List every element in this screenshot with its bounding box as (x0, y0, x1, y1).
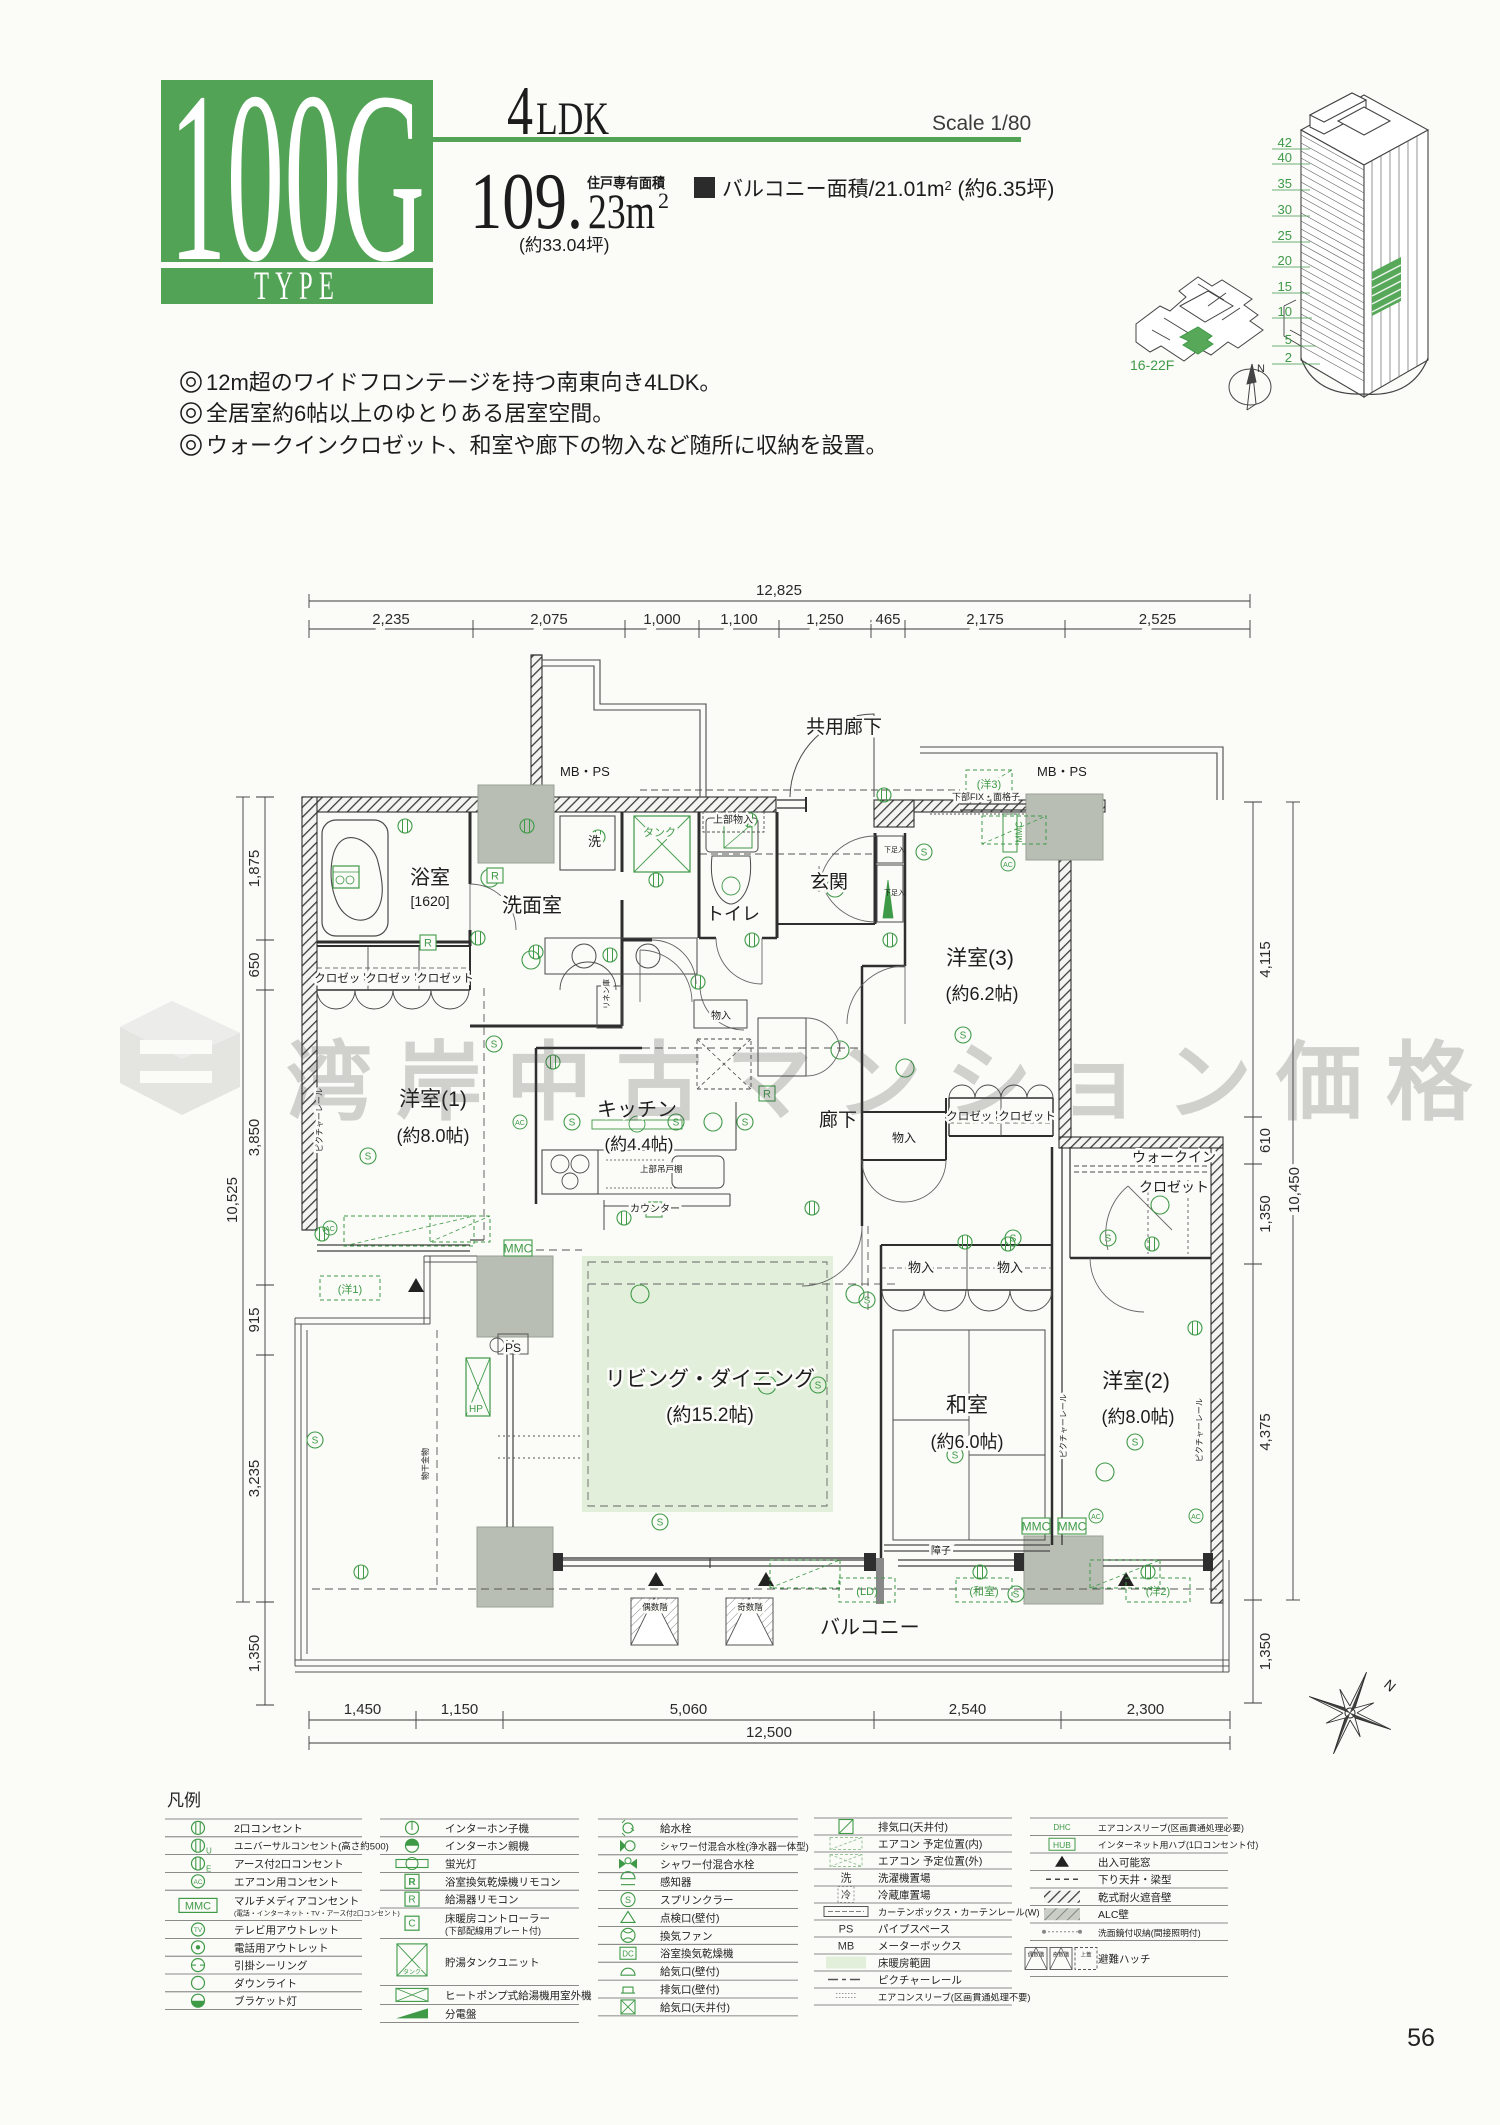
svg-text:16-22F: 16-22F (1130, 357, 1174, 373)
svg-text:障子: 障子 (931, 1544, 951, 1557)
svg-text:AC: AC (325, 1226, 335, 1233)
svg-text:5: 5 (1285, 332, 1292, 347)
svg-text:S: S (952, 1451, 959, 1462)
svg-text:テレビ用アウトレット: テレビ用アウトレット (234, 1925, 339, 1937)
svg-text:DC: DC (622, 1949, 634, 1958)
svg-text:住戸専有面積: 住戸専有面積 (587, 175, 666, 191)
svg-text:C: C (408, 1919, 415, 1930)
svg-text:PS: PS (839, 1924, 854, 1936)
svg-text:ダウンライト: ダウンライト (234, 1977, 297, 1990)
svg-text:洋室(3): 洋室(3) (946, 947, 1014, 970)
svg-text:床暖房コントローラー: 床暖房コントローラー (445, 1912, 550, 1925)
svg-text:TYPE: TYPE (254, 263, 340, 308)
svg-text:排気口(壁付): 排気口(壁付) (660, 1983, 720, 1996)
svg-text:冷: 冷 (841, 1889, 851, 1902)
svg-text:R: R (491, 871, 499, 883)
svg-text:2,540: 2,540 (949, 1701, 987, 1718)
svg-text:給水栓: 給水栓 (660, 1822, 692, 1835)
svg-text:1,250: 1,250 (806, 611, 844, 628)
svg-text:AC: AC (1091, 1514, 1101, 1521)
svg-text:3,850: 3,850 (246, 1119, 263, 1157)
svg-text:(洋2): (洋2) (1146, 1584, 1170, 1598)
svg-text:MMC: MMC (1014, 821, 1024, 843)
svg-text:AC: AC (193, 1879, 202, 1886)
svg-text:25: 25 (1278, 228, 1292, 243)
svg-text:2: 2 (1285, 350, 1292, 365)
svg-text:15: 15 (1278, 279, 1292, 294)
svg-text:650: 650 (246, 952, 263, 977)
svg-text:35: 35 (1278, 176, 1292, 191)
svg-text:洗面鏡付収納(間接照明付): 洗面鏡付収納(間接照明付) (1098, 1927, 1201, 1938)
svg-text:R: R (424, 938, 432, 950)
svg-text:2,075: 2,075 (530, 611, 568, 628)
svg-text:給気口(壁付): 給気口(壁付) (660, 1965, 720, 1978)
svg-text:20: 20 (1278, 253, 1292, 268)
svg-text:ウォークイン: ウォークイン (1132, 1149, 1216, 1165)
svg-text:クロゼット: クロゼット (365, 972, 423, 985)
svg-text:N: N (1257, 363, 1265, 375)
svg-text:12m超のワイドフロンテージを持つ南東向き4LDK。: 12m超のワイドフロンテージを持つ南東向き4LDK。 (206, 370, 721, 395)
svg-text:共用廊下: 共用廊下 (806, 716, 882, 738)
svg-text:排気口(天井付): 排気口(天井付) (878, 1821, 948, 1834)
svg-text:冷蔵庫置場: 冷蔵庫置場 (878, 1889, 931, 1902)
svg-text:1,450: 1,450 (344, 1701, 382, 1718)
svg-text:ユニバーサルコンセント(高さ約500): ユニバーサルコンセント(高さ約500) (234, 1841, 389, 1853)
svg-text:ウォークインクロゼット、和室や廊下の物入など随所に収納を設置: ウォークインクロゼット、和室や廊下の物入など随所に収納を設置。 (206, 433, 888, 458)
svg-text:56: 56 (1407, 2024, 1435, 2052)
svg-text:ブラケット灯: ブラケット灯 (234, 1995, 297, 2008)
svg-text:(約6.2帖): (約6.2帖) (945, 984, 1018, 1004)
svg-text:S: S (1132, 1438, 1139, 1449)
svg-text:(約8.0帖): (約8.0帖) (1101, 1407, 1174, 1427)
svg-text:4,375: 4,375 (1257, 1413, 1274, 1451)
svg-text:MMC: MMC (185, 1900, 211, 1912)
svg-text:30: 30 (1278, 202, 1292, 217)
svg-text:MB・PS: MB・PS (1037, 764, 1087, 779)
svg-text:4: 4 (507, 73, 533, 150)
svg-text:R: R (408, 1877, 416, 1888)
svg-text:点検口(壁付): 点検口(壁付) (660, 1912, 720, 1925)
svg-text:ヒートポンプ式給湯機用室外機: ヒートポンプ式給湯機用室外機 (445, 1989, 592, 2002)
svg-text:インターホン親機: インターホン親機 (445, 1840, 529, 1853)
svg-text:1,000: 1,000 (643, 611, 681, 628)
svg-text:下部FIX・面格子: 下部FIX・面格子 (952, 791, 1020, 802)
svg-text:(約15.2帖): (約15.2帖) (666, 1404, 754, 1426)
svg-text:LDK: LDK (536, 93, 609, 145)
svg-text:Scale 1/80: Scale 1/80 (932, 112, 1031, 135)
svg-text:3,235: 3,235 (246, 1460, 263, 1498)
svg-text:エアコンスリーブ(区画貫通処理不要): エアコンスリーブ(区画貫通処理不要) (878, 1992, 1030, 2003)
svg-text:床暖房範囲: 床暖房範囲 (878, 1957, 931, 1970)
svg-text:5,060: 5,060 (670, 1701, 708, 1718)
svg-text:クロゼット: クロゼット (1139, 1179, 1209, 1195)
svg-text:1,350: 1,350 (246, 1635, 263, 1673)
svg-text:引掛シーリング: 引掛シーリング (234, 1959, 308, 1972)
svg-text:洗面室: 洗面室 (502, 894, 562, 917)
svg-text:カーテンボックス・カーテンレール(W): カーテンボックス・カーテンレール(W) (878, 1908, 1040, 1918)
svg-text:2: 2 (658, 188, 669, 213)
svg-text:ピクチャーレール: ピクチャーレール (878, 1975, 962, 1987)
svg-text:S: S (625, 1895, 631, 1905)
svg-text:DHC: DHC (1053, 1823, 1071, 1832)
svg-text:分電盤: 分電盤 (445, 2007, 477, 2020)
svg-text:貯湯タンクユニット: 貯湯タンクユニット (445, 1957, 540, 1969)
svg-text:HP: HP (469, 1404, 483, 1415)
svg-text:洗: 洗 (588, 834, 601, 849)
svg-text:2,525: 2,525 (1139, 611, 1177, 628)
svg-text:インターネット用ハブ(1口コンセント付): インターネット用ハブ(1口コンセント付) (1098, 1839, 1258, 1850)
svg-text:(和室): (和室) (969, 1584, 998, 1598)
svg-text:2,300: 2,300 (1127, 1701, 1165, 1718)
svg-text:R: R (408, 1895, 415, 1906)
svg-text:12,500: 12,500 (746, 1724, 792, 1741)
svg-text:出入可能窓: 出入可能窓 (1098, 1856, 1151, 1869)
svg-text:S: S (365, 1152, 372, 1163)
svg-text:S: S (815, 1381, 822, 1392)
svg-text:PS: PS (505, 1341, 521, 1355)
svg-text:蛍光灯: 蛍光灯 (445, 1858, 477, 1871)
svg-text:奇数階: 奇数階 (737, 1602, 763, 1612)
svg-text:エアコンスリーブ(区画貫通処理必要): エアコンスリーブ(区画貫通処理必要) (1098, 1822, 1244, 1833)
svg-text:マルチメディアコンセント: マルチメディアコンセント (234, 1894, 359, 1907)
svg-text:上蓋: 上蓋 (1080, 1951, 1092, 1959)
svg-text:10: 10 (1278, 304, 1292, 319)
svg-text:メーターボックス: メーターボックス (878, 1941, 962, 1953)
svg-text:換気ファン: 換気ファン (660, 1929, 713, 1942)
svg-text:40: 40 (1278, 150, 1292, 165)
svg-text:下り天井・梁型: 下り天井・梁型 (1098, 1873, 1172, 1886)
svg-text:下足入: 下足入 (884, 846, 905, 854)
svg-text:乾式耐火遮音壁: 乾式耐火遮音壁 (1098, 1891, 1172, 1904)
svg-text:42: 42 (1278, 135, 1292, 150)
svg-text:エアコン用コンセント: エアコン用コンセント (234, 1876, 339, 1888)
svg-text:避難ハッチ: 避難ハッチ (1098, 1953, 1151, 1966)
svg-text:23m: 23m (588, 183, 655, 239)
svg-text:S: S (312, 1436, 319, 1447)
svg-text:和室: 和室 (946, 1394, 988, 1417)
svg-text:[1620]: [1620] (411, 893, 450, 909)
svg-text:4,115: 4,115 (1257, 941, 1274, 977)
svg-text:(約4.4帖): (約4.4帖) (605, 1135, 674, 1154)
svg-text:MB・PS: MB・PS (560, 764, 610, 779)
svg-text:10,450: 10,450 (1286, 1167, 1303, 1213)
svg-text:1,150: 1,150 (441, 1701, 479, 1718)
svg-text:N: N (1381, 1676, 1399, 1695)
svg-text:(LD): (LD) (856, 1586, 877, 1598)
svg-text:偶数階: 偶数階 (1028, 1951, 1045, 1959)
svg-text:465: 465 (875, 611, 900, 628)
svg-text:クロゼット: クロゼット (416, 972, 474, 985)
svg-text:パイプスペース: パイプスペース (878, 1924, 950, 1936)
svg-text:ピクチャーレール: ピクチャーレール (1195, 1398, 1204, 1462)
svg-text:E: E (206, 1865, 211, 1874)
svg-text:上部物入: 上部物入 (713, 813, 753, 826)
svg-text:浴室換気乾燥機: 浴室換気乾燥機 (660, 1947, 734, 1960)
svg-text:AC: AC (1191, 1514, 1201, 1521)
svg-text:(約33.04坪): (約33.04坪) (519, 235, 609, 255)
svg-text:インターホン子機: インターホン子機 (445, 1822, 529, 1835)
svg-text:リネン庫: リネン庫 (601, 979, 611, 1009)
svg-text:109.: 109. (470, 156, 583, 246)
svg-text:洗: 洗 (841, 1872, 852, 1885)
svg-text:S: S (657, 1518, 664, 1529)
svg-text:AC: AC (1003, 862, 1013, 869)
svg-text:給湯器リモコン: 給湯器リモコン (445, 1893, 519, 1906)
svg-text:12,825: 12,825 (756, 582, 802, 599)
svg-text:HUB: HUB (1053, 1840, 1071, 1850)
svg-text:バルコニー面積/21.01m2 (約6.35坪): バルコニー面積/21.01m2 (約6.35坪) (722, 178, 1054, 201)
svg-text:(洋3): (洋3) (977, 777, 1001, 791)
svg-text:感知器: 感知器 (660, 1876, 692, 1889)
svg-text:MMC: MMC (504, 1242, 533, 1256)
svg-text:(電話・インターネット・TV・アース付2口コンセント): (電話・インターネット・TV・アース付2口コンセント) (234, 1908, 400, 1917)
svg-text:給気口(天井付): 給気口(天井付) (660, 2001, 730, 2014)
svg-text:クロゼット: クロゼット (314, 972, 372, 985)
svg-text:物入: 物入 (997, 1260, 1023, 1275)
svg-text:シャワー付混合水栓: シャワー付混合水栓 (660, 1858, 755, 1871)
svg-text:下足入: 下足入 (884, 889, 905, 897)
svg-text:物入: 物入 (908, 1260, 934, 1275)
svg-text:1,350: 1,350 (1257, 1195, 1274, 1233)
svg-text:(約6.0帖): (約6.0帖) (930, 1432, 1003, 1452)
svg-text:S: S (1105, 1234, 1112, 1245)
svg-text:タンク: タンク (643, 826, 676, 839)
svg-text:浴室換気乾燥機リモコン: 浴室換気乾燥機リモコン (445, 1875, 561, 1888)
svg-text:アース付2口コンセント: アース付2口コンセント (234, 1858, 344, 1871)
svg-text:洋室(2): 洋室(2) (1102, 1370, 1170, 1393)
svg-text:トイレ: トイレ (706, 904, 760, 924)
svg-text:リビング・ダイニング: リビング・ダイニング (605, 1368, 815, 1391)
svg-text:(洋1): (洋1) (338, 1282, 362, 1296)
svg-text:ALC壁: ALC壁 (1098, 1908, 1129, 1921)
svg-text:S: S (864, 1296, 871, 1307)
svg-text:2口コンセント: 2口コンセント (234, 1823, 303, 1835)
svg-text:10,525: 10,525 (224, 1177, 241, 1223)
svg-text:浴室: 浴室 (410, 866, 450, 889)
svg-text:S: S (1013, 1590, 1020, 1601)
svg-text:シャワー付混合水栓(浄水器一体型): シャワー付混合水栓(浄水器一体型) (660, 1841, 809, 1853)
svg-text:エアコン 予定位置(内): エアコン 予定位置(内) (878, 1838, 982, 1851)
svg-text:バルコニー: バルコニー (820, 1617, 920, 1639)
svg-text:915: 915 (246, 1307, 263, 1332)
svg-text:S: S (921, 848, 928, 859)
svg-text:凡例: 凡例 (167, 1791, 201, 1810)
svg-text:1,875: 1,875 (246, 850, 263, 888)
svg-text:カウンター: カウンター (630, 1203, 680, 1215)
svg-text:1,350: 1,350 (1257, 1633, 1274, 1671)
svg-text:奇数階: 奇数階 (1053, 1951, 1070, 1959)
svg-text:電話用アウトレット: 電話用アウトレット (234, 1941, 329, 1954)
svg-text:MMC: MMC (1058, 1520, 1087, 1534)
svg-text:玄関: 玄関 (810, 871, 848, 893)
svg-text:全居室約6帖以上のゆとりある居室空間。: 全居室約6帖以上のゆとりある居室空間。 (206, 401, 614, 426)
svg-text:タンク: タンク (403, 1968, 421, 1976)
svg-text:TV: TV (194, 1927, 203, 1934)
svg-text:2,235: 2,235 (372, 611, 410, 628)
svg-text:(下部配線用プレート付): (下部配線用プレート付) (445, 1925, 541, 1936)
svg-text:2,175: 2,175 (966, 611, 1004, 628)
svg-text:洗濯機置場: 洗濯機置場 (878, 1872, 931, 1885)
svg-text:MB: MB (838, 1941, 855, 1953)
svg-text:ピクチャーレール: ピクチャーレール (1059, 1394, 1068, 1458)
svg-text:偶数階: 偶数階 (642, 1602, 668, 1612)
svg-text:エアコン 予定位置(外): エアコン 予定位置(外) (878, 1855, 982, 1868)
svg-text:1,100: 1,100 (720, 611, 758, 628)
svg-text:上部吊戸棚: 上部吊戸棚 (640, 1164, 683, 1174)
svg-text:物干金物: 物干金物 (420, 1448, 430, 1480)
svg-text:MMC: MMC (1022, 1520, 1051, 1534)
svg-text:U: U (206, 1847, 212, 1856)
svg-text:スプリンクラー: スプリンクラー (660, 1895, 734, 1907)
